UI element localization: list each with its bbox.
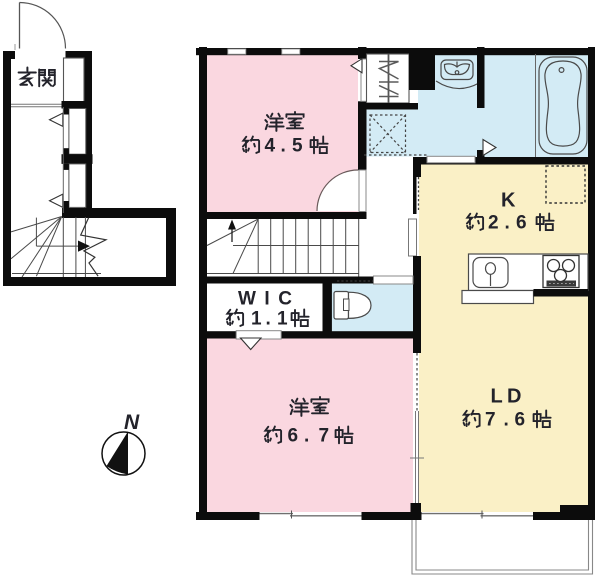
svg-text:6: 6 bbox=[288, 426, 299, 447]
svg-text:L: L bbox=[491, 386, 503, 408]
svg-text:6: 6 bbox=[516, 213, 527, 234]
svg-text:.: . bbox=[505, 213, 510, 234]
svg-text:WIC: WIC bbox=[238, 289, 300, 310]
svg-text:.: . bbox=[304, 426, 309, 447]
svg-text:K: K bbox=[501, 190, 516, 212]
svg-text:7: 7 bbox=[485, 410, 496, 431]
svg-text:7: 7 bbox=[319, 426, 330, 447]
svg-text:.: . bbox=[504, 410, 509, 431]
svg-text:6: 6 bbox=[515, 410, 526, 431]
svg-text:.: . bbox=[266, 309, 271, 330]
svg-text:5: 5 bbox=[292, 136, 303, 157]
svg-text:N: N bbox=[124, 411, 140, 434]
svg-text:.: . bbox=[281, 136, 286, 157]
svg-text:1: 1 bbox=[251, 309, 262, 330]
svg-text:4: 4 bbox=[265, 136, 276, 157]
svg-text:D: D bbox=[507, 386, 521, 408]
svg-text:1: 1 bbox=[277, 309, 288, 330]
svg-text:2: 2 bbox=[488, 213, 499, 234]
